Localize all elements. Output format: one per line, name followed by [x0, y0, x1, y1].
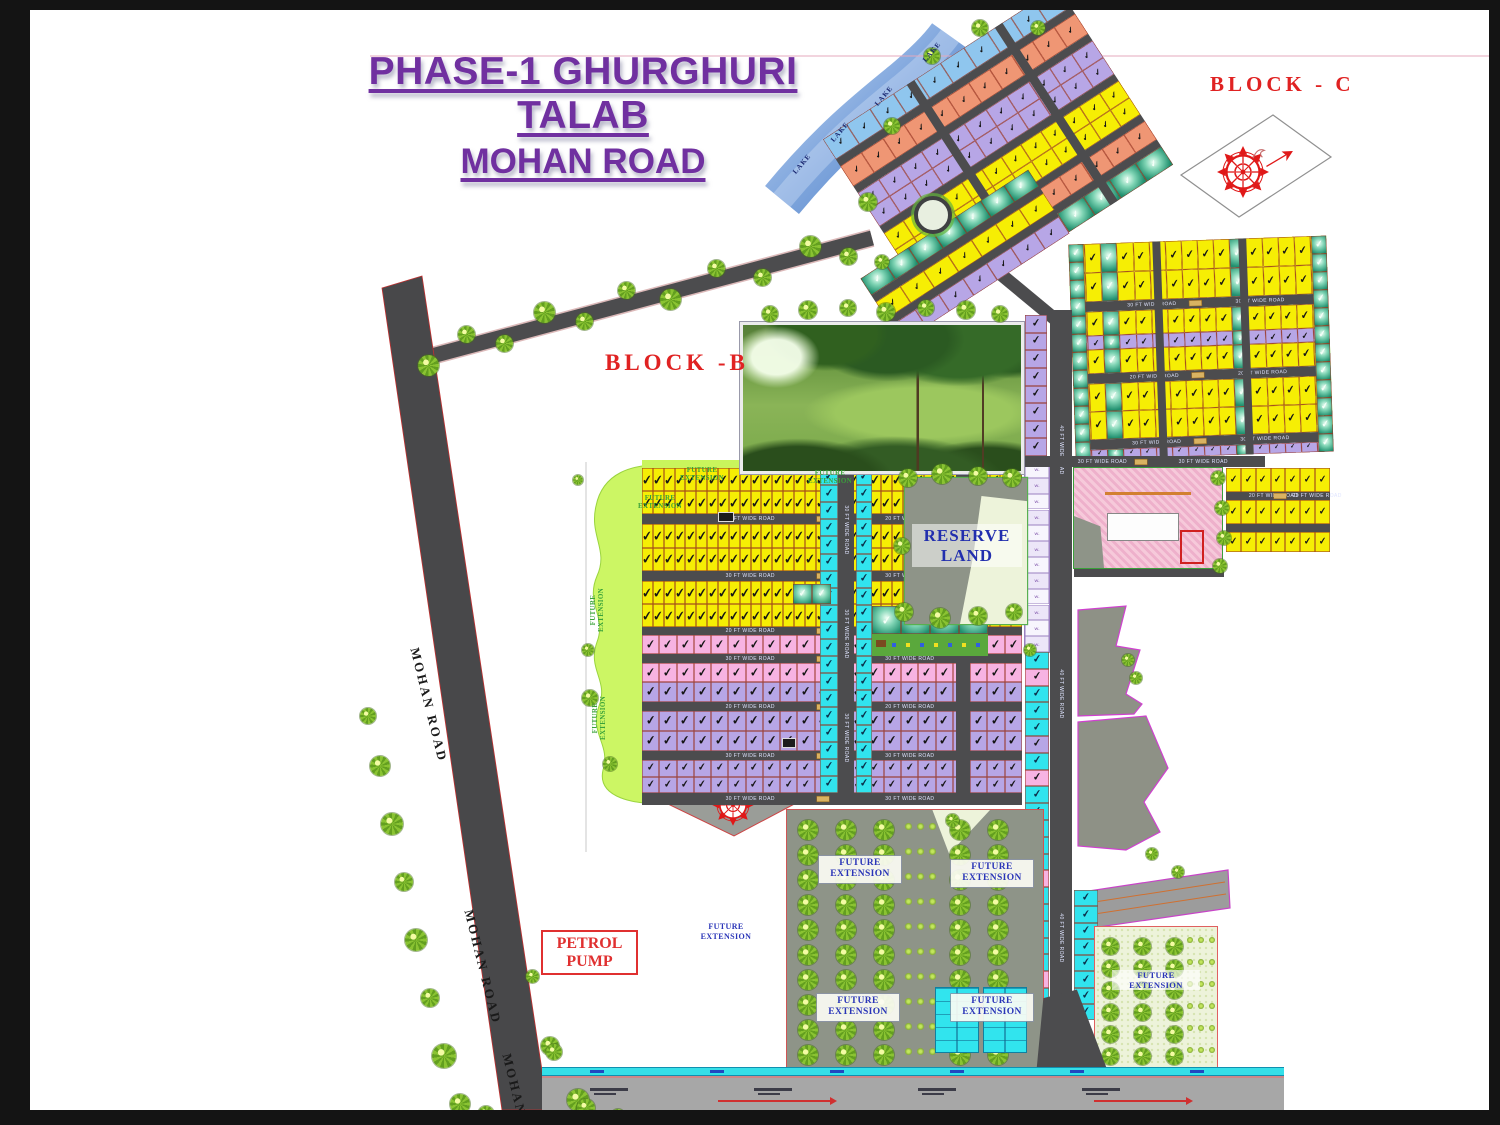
small-tree: [929, 1023, 936, 1030]
plot-cell: ✔: [1070, 298, 1086, 317]
check-mark: ✔: [1032, 722, 1041, 734]
check-mark: ✔: [905, 779, 914, 791]
check-mark: ✔: [1032, 654, 1041, 666]
plot-cell: ✔: [1300, 468, 1315, 492]
plot-cell: ✔: [1221, 445, 1237, 456]
check-mark: ✔: [697, 734, 708, 748]
check-mark: ✔: [1032, 738, 1041, 750]
tree: [798, 920, 818, 940]
plot-cell: ✔: [1251, 406, 1268, 435]
plot-cell: ✔: [1074, 890, 1098, 906]
check-mark: ✔: [1090, 103, 1100, 114]
plot-cell: ✔: [642, 548, 653, 572]
tree: [969, 607, 987, 625]
plot-cell: ✔: [1025, 770, 1049, 787]
small-tree: [1187, 1047, 1193, 1053]
road-marker: [1192, 372, 1204, 377]
tree: [1166, 1048, 1183, 1065]
plot-cell: ✔: [642, 682, 659, 702]
tree: [360, 708, 376, 724]
plot-cell: ✔: [1072, 352, 1088, 371]
plot-cell: ✔: [1025, 669, 1049, 686]
check-mark: ✔: [922, 762, 931, 774]
check-mark: ✔: [675, 585, 686, 599]
check-mark: ✔: [1078, 410, 1087, 421]
plot-cell: ✔: [987, 760, 1004, 777]
small-tree: [1187, 1025, 1193, 1031]
plot-cell: ✔: [707, 491, 718, 514]
check-mark: ✔: [1304, 475, 1312, 486]
check-mark: ✔: [993, 196, 1003, 207]
plot-cell: ✔: [1025, 753, 1049, 770]
check-mark: ✔: [859, 522, 868, 534]
check-mark: ✔: [675, 552, 686, 566]
plot-cell: ✔: [642, 468, 653, 491]
check-mark: ✔: [1089, 281, 1098, 293]
plot-cell: ✔: [856, 571, 872, 588]
plot-cell: ✔: [677, 777, 694, 794]
check-mark: ✔: [1255, 414, 1264, 426]
check-mark: ✔: [732, 685, 743, 699]
road: 30 FT WIDE ROAD30 FT WIDE ROAD: [1025, 456, 1265, 467]
tree: [1146, 848, 1158, 860]
tree: [950, 945, 970, 965]
tree: [950, 970, 970, 990]
check-mark: ✔: [715, 638, 725, 651]
check-mark: ✔: [1032, 688, 1041, 700]
check-mark: ✔: [894, 230, 904, 241]
check-mark: ✔: [881, 613, 891, 626]
w-plot-cell: W-: [1025, 541, 1049, 557]
plan-page: ✔✔✔✔✔✔✔✔✔✔✔✔✔✔✔✔✔✔✔✔✔✔✔✔✔✔✔✔✔✔✔✔✔✔✔✔✔✔✔✔…: [30, 10, 1489, 1110]
tree: [1166, 1026, 1183, 1043]
check-mark: ✔: [1269, 349, 1278, 361]
plot-cell: ✔: [797, 731, 814, 751]
plot-cell: ✔: [1241, 500, 1256, 524]
tree: [950, 920, 970, 940]
bottom-road: [542, 1076, 1284, 1110]
w-plot-label: W-: [1034, 562, 1039, 567]
plot-cell: ✔: [642, 760, 659, 777]
small-tree: [1209, 1025, 1215, 1031]
check-mark: ✔: [1307, 444, 1312, 451]
road-caption: 20 FT WIDE ROAD: [885, 704, 934, 710]
plot-cell: ✔: [642, 581, 653, 604]
small-tree: [929, 898, 936, 905]
small-tree: [905, 823, 912, 830]
check-mark: ✔: [761, 529, 772, 543]
plot-cell: ✔: [763, 682, 780, 702]
plot-cell: ✔: [918, 777, 935, 794]
check-mark: ✔: [707, 608, 718, 622]
check-mark: ✔: [751, 472, 762, 486]
plot-cell: ✔: [728, 663, 745, 682]
plot-cell: ✔: [1025, 438, 1047, 456]
small-tree: [929, 998, 936, 1005]
check-mark: ✔: [1271, 413, 1280, 425]
future-extension-label: FUTURE EXTENSION: [589, 575, 605, 645]
plot-cell: ✔: [1005, 635, 1022, 654]
plot-cell: ✔: [729, 491, 740, 514]
check-mark: ✔: [859, 642, 868, 654]
tree: [884, 118, 900, 134]
tree: [573, 475, 583, 485]
future-extension-label: FUTURE EXTENSION: [1112, 970, 1200, 990]
check-mark: ✔: [794, 529, 805, 543]
check-mark: ✔: [1218, 277, 1227, 289]
plot-cell: ✔: [1300, 404, 1317, 433]
small-tree: [917, 973, 924, 980]
check-mark: ✔: [1018, 92, 1028, 103]
plot-cell: ✔: [694, 731, 711, 751]
check-mark: ✔: [1173, 335, 1181, 345]
plot-cell: ✔: [794, 524, 805, 548]
check-mark: ✔: [1189, 334, 1197, 344]
petrol-pump-label-line2: PUMP: [545, 953, 634, 971]
small-tree: [917, 1023, 924, 1030]
plot-cell: ✔: [856, 502, 872, 519]
small-tree: [905, 1023, 912, 1030]
check-mark: ✔: [1171, 315, 1180, 327]
plot-cell: ✔: [1250, 378, 1267, 407]
tree: [546, 1044, 562, 1060]
plot-cell: ✔: [1025, 421, 1047, 439]
check-mark: ✔: [1137, 250, 1146, 262]
plot-cell: ✔: [1118, 271, 1135, 301]
plot-cell: ✔: [696, 548, 707, 572]
check-mark: ✔: [707, 495, 718, 509]
check-mark: ✔: [783, 608, 794, 622]
small-tree: [917, 1048, 924, 1055]
plot-cell: ✔: [1085, 272, 1102, 302]
check-mark: ✔: [729, 495, 740, 509]
plot-cell: ✔: [936, 731, 953, 751]
plot-cell: ✔: [1025, 368, 1047, 386]
check-mark: ✔: [664, 762, 673, 774]
road-text-mark: [922, 1093, 944, 1095]
check-mark: ✔: [859, 607, 868, 619]
plot-cell: ✔: [783, 524, 794, 548]
tree: [534, 302, 555, 323]
plot-cell: ✔: [1005, 711, 1022, 731]
check-mark: ✔: [1073, 284, 1082, 295]
plot-cell: ✔: [761, 524, 772, 548]
check-mark: ✔: [1186, 278, 1195, 290]
plot-cell: ✔: [1295, 265, 1312, 295]
plot-cell: ✔: [772, 604, 783, 627]
small-tree: [905, 923, 912, 930]
plot-cell: ✔: [653, 604, 664, 627]
check-mark: ✔: [859, 505, 868, 517]
check-mark: ✔: [1259, 507, 1267, 518]
plot-cell: ✔: [936, 682, 953, 702]
check-mark: ✔: [1071, 209, 1081, 220]
plot-cell: ✔: [1198, 268, 1215, 298]
w-plot-cell: W-: [1025, 589, 1049, 605]
check-mark: ✔: [1221, 333, 1229, 343]
plot-cell: ✔: [856, 485, 872, 502]
w-plot-label: W-: [1034, 467, 1039, 472]
check-mark: ✔: [664, 585, 675, 599]
check-mark: ✔: [991, 734, 1002, 748]
plot-cell: ✔: [1299, 376, 1316, 405]
plot-cell: ✔: [1315, 343, 1331, 362]
plot-cell: ✔: [696, 604, 707, 627]
check-mark: ✔: [954, 60, 964, 71]
check-mark: ✔: [1070, 115, 1080, 126]
check-mark: ✔: [824, 727, 833, 739]
plot-cell: ✔: [1119, 310, 1136, 335]
check-mark: ✔: [1320, 401, 1329, 412]
check-mark: ✔: [696, 495, 707, 509]
check-mark: ✔: [729, 585, 740, 599]
check-mark: ✔: [975, 274, 985, 285]
check-mark: ✔: [1088, 252, 1097, 264]
plot-cell: ✔: [1219, 407, 1236, 436]
tree: [840, 248, 857, 265]
check-mark: ✔: [859, 539, 868, 551]
check-mark: ✔: [1023, 243, 1033, 254]
tree: [946, 814, 959, 827]
plot-cell: ✔: [772, 548, 783, 572]
plot-cell: ✔: [711, 777, 728, 794]
plot-cell: ✔: [746, 731, 763, 751]
plot-cell: ✔: [1279, 266, 1296, 296]
plot-cell: ✔: [1202, 379, 1219, 408]
check-mark: ✔: [1205, 334, 1213, 344]
check-mark: ✔: [707, 552, 718, 566]
drain-strip: [542, 1067, 1284, 1076]
check-mark: ✔: [801, 734, 812, 748]
check-mark: ✔: [772, 552, 783, 566]
plot-cell: ✔: [892, 491, 903, 514]
tree: [874, 1020, 894, 1040]
plot-cell: ✔: [1186, 380, 1203, 409]
tree: [798, 820, 818, 840]
plot-cell: ✔: [685, 524, 696, 548]
plot-cell: ✔: [729, 581, 740, 604]
check-mark: ✔: [1125, 390, 1134, 402]
check-mark: ✔: [1123, 316, 1132, 328]
road-caption: 20 FT WIDE ROAD: [726, 628, 775, 634]
tree: [836, 920, 856, 940]
check-mark: ✔: [991, 666, 1001, 679]
plot-cell: ✔: [881, 491, 892, 514]
check-mark: ✔: [1008, 714, 1019, 728]
play-dot: [976, 643, 980, 647]
plot-cell: ✔: [970, 711, 987, 731]
plot-cell: ✔: [677, 711, 694, 731]
check-mark: ✔: [859, 761, 868, 773]
check-mark: ✔: [1259, 537, 1267, 548]
plot-cell: ✔: [1071, 334, 1087, 353]
tree: [874, 895, 894, 915]
check-mark: ✔: [1259, 475, 1267, 486]
check-mark: ✔: [1120, 107, 1130, 118]
plot-cell: ✔: [987, 777, 1004, 794]
plot-cell: ✔: [1102, 272, 1119, 302]
plot-cell: ✔: [751, 548, 762, 572]
plot-cell: ✔: [1123, 410, 1140, 439]
check-mark: ✔: [664, 608, 675, 622]
plot-cell: ✔: [970, 760, 987, 777]
plot-cell: ✔: [1088, 349, 1105, 374]
plot-cell: ✔: [746, 760, 763, 777]
plot-cell: ✔: [1169, 347, 1186, 372]
check-mark: ✔: [646, 762, 655, 774]
check-mark: ✔: [895, 136, 905, 147]
future-extension-label: FUTURE EXTENSION: [951, 860, 1033, 887]
plot-cell: ✔: [780, 682, 797, 702]
tree: [798, 870, 818, 890]
check-mark: ✔: [1076, 356, 1085, 367]
check-mark: ✔: [729, 552, 740, 566]
check-mark: ✔: [1253, 350, 1262, 362]
plot-cell: ✔: [820, 673, 838, 690]
plot-cell: ✔: [653, 524, 664, 548]
plot-cell: ✔: [794, 604, 805, 627]
small-tree: [1198, 1025, 1204, 1031]
plot-cell: ✔: [659, 760, 676, 777]
check-mark: ✔: [751, 495, 762, 509]
future-extension-label: FUTURE EXTENSION: [798, 469, 862, 485]
check-mark: ✔: [1124, 354, 1133, 366]
plot-cell: ✔: [1284, 405, 1301, 434]
plot-cell: ✔: [1214, 268, 1231, 298]
plot-cell: ✔: [659, 663, 676, 682]
check-mark: ✔: [772, 495, 783, 509]
check-mark: ✔: [1169, 249, 1178, 261]
check-mark: ✔: [1304, 507, 1312, 518]
check-mark: ✔: [1072, 266, 1081, 277]
check-mark: ✔: [772, 608, 783, 622]
plot-cell: ✔: [856, 725, 872, 742]
plot-cell: ✔: [1314, 308, 1330, 327]
plot-cell: ✔: [936, 711, 953, 731]
check-mark: ✔: [1092, 355, 1101, 367]
check-mark: ✔: [1009, 779, 1018, 791]
tree: [1172, 866, 1184, 878]
block-b-label: BLOCK -B: [605, 350, 805, 376]
tree: [988, 920, 1008, 940]
plot-cell: ✔: [729, 604, 740, 627]
plot-cell: ✔: [664, 604, 675, 627]
small-tree: [1209, 1047, 1215, 1053]
plot-cell: ✔: [856, 656, 872, 673]
plot-cell: ✔: [711, 635, 728, 654]
plot-cell: ✔: [1203, 407, 1220, 436]
check-mark: ✔: [766, 734, 777, 748]
plot-cell: ✔: [664, 548, 675, 572]
tree: [603, 757, 617, 771]
tree: [969, 467, 987, 485]
road-caption: 30 FT WIDE ROAD: [726, 753, 775, 759]
check-mark: ✔: [1318, 347, 1327, 358]
plot-cell: ✔: [1073, 370, 1089, 389]
utility-icon: [718, 512, 734, 522]
plot-cell: ✔: [1300, 500, 1315, 524]
check-mark: ✔: [824, 607, 833, 619]
check-mark: ✔: [824, 744, 833, 756]
small-tree: [929, 973, 936, 980]
plot-cell: ✔: [659, 777, 676, 794]
check-mark: ✔: [1210, 447, 1215, 454]
plot-cell: ✔: [1168, 333, 1185, 348]
check-mark: ✔: [859, 778, 868, 790]
plot-cell: ✔: [1241, 468, 1256, 492]
check-mark: ✔: [1318, 537, 1326, 548]
plot-cell: ✔: [918, 682, 935, 702]
drain-mark: [950, 1070, 964, 1073]
check-mark: ✔: [707, 585, 718, 599]
plot-cell: ✔: [1268, 405, 1285, 434]
check-mark: ✔: [783, 472, 794, 486]
check-mark: ✔: [999, 258, 1009, 269]
utility-icon: [782, 738, 796, 748]
building-footprint: [1108, 514, 1178, 540]
check-mark: ✔: [991, 638, 1001, 651]
tree: [1134, 1004, 1151, 1021]
plot-cell: ✔: [1300, 532, 1315, 552]
check-mark: ✔: [1072, 81, 1082, 92]
plot-cell: ✔: [1197, 240, 1214, 270]
plot-cell: ✔: [659, 711, 676, 731]
check-mark: ✔: [1285, 331, 1293, 341]
plot-cell: ✔: [1138, 382, 1155, 411]
plot-cell: ✔: [918, 663, 935, 682]
check-mark: ✔: [715, 666, 725, 679]
reserve-land-label: RESERVE LAND: [912, 524, 1022, 567]
check-mark: ✔: [905, 666, 915, 679]
plot-cell: ✔: [1135, 310, 1152, 335]
check-mark: ✔: [890, 175, 900, 186]
plot-cell: ✔: [653, 581, 664, 604]
check-mark: ✔: [881, 529, 892, 543]
plot-cell: ✔: [659, 635, 676, 654]
plot-cell: ✔: [728, 635, 745, 654]
check-mark: ✔: [824, 693, 833, 705]
plot-cell: ✔: [696, 491, 707, 514]
road-marker: [1274, 494, 1286, 499]
w-plot-cell: W-: [1025, 573, 1049, 589]
plot-cell: ✔: [653, 468, 664, 491]
plot-cell: ✔: [1285, 468, 1300, 492]
check-mark: ✔: [881, 495, 892, 509]
plot-cell: ✔: [1171, 409, 1188, 438]
check-mark: ✔: [1042, 158, 1052, 169]
check-mark: ✔: [1076, 374, 1085, 385]
check-mark: ✔: [824, 659, 833, 671]
tree: [895, 603, 913, 621]
check-mark: ✔: [1217, 248, 1226, 260]
check-mark: ✔: [974, 666, 984, 679]
plot-cell: ✔: [1005, 777, 1022, 794]
check-mark: ✔: [1205, 352, 1214, 364]
tree: [930, 608, 950, 628]
plot-cell: ✔: [761, 548, 772, 572]
plot-cell: ✔: [1188, 446, 1204, 457]
plot-cell: ✔: [1312, 272, 1328, 291]
plot-cell: ✔: [856, 605, 872, 622]
tree: [450, 1094, 470, 1110]
plot-cell: ✔: [642, 711, 659, 731]
plot-cell: ✔: [1183, 308, 1200, 333]
check-mark: ✔: [992, 779, 1001, 791]
check-mark: ✔: [761, 495, 772, 509]
check-mark: ✔: [707, 529, 718, 543]
plot-cell: ✔: [1204, 445, 1220, 456]
check-mark: ✔: [697, 685, 708, 699]
